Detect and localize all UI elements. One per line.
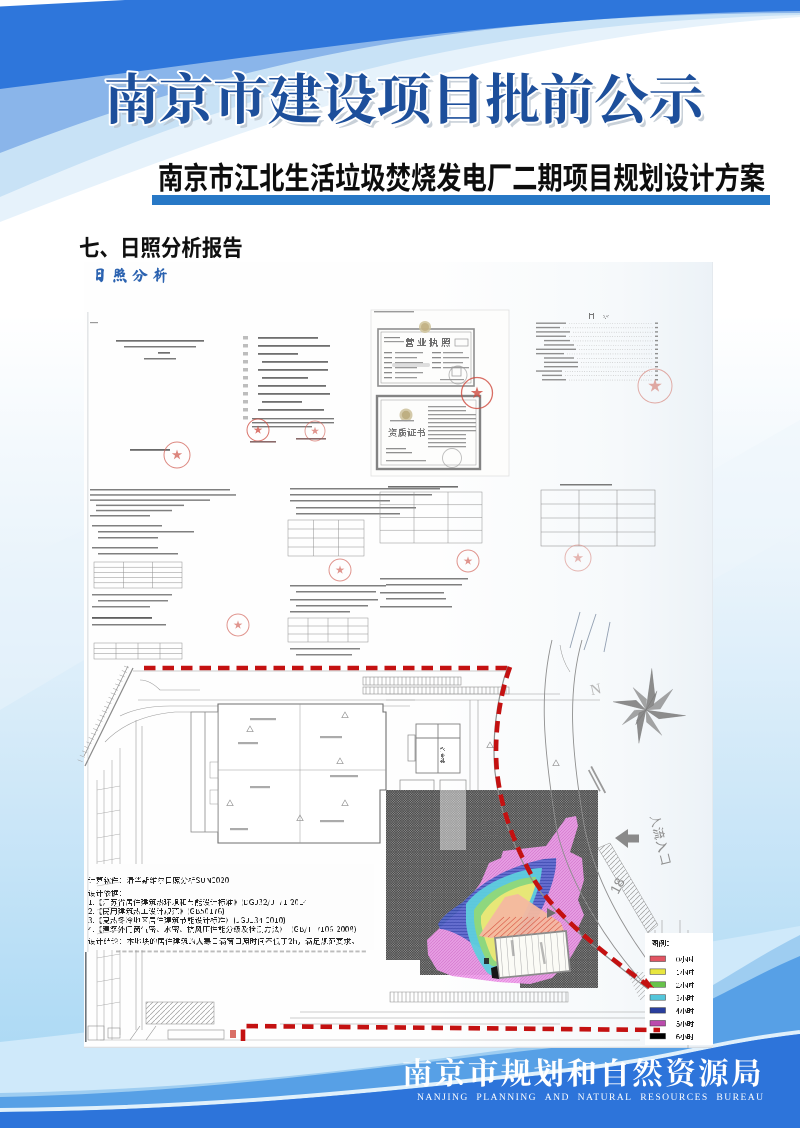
svg-text:NANJING PLANNING AND NATURA: NANJING PLANNING AND NATURAL RESOURCES B… <box>417 1092 765 1103</box>
